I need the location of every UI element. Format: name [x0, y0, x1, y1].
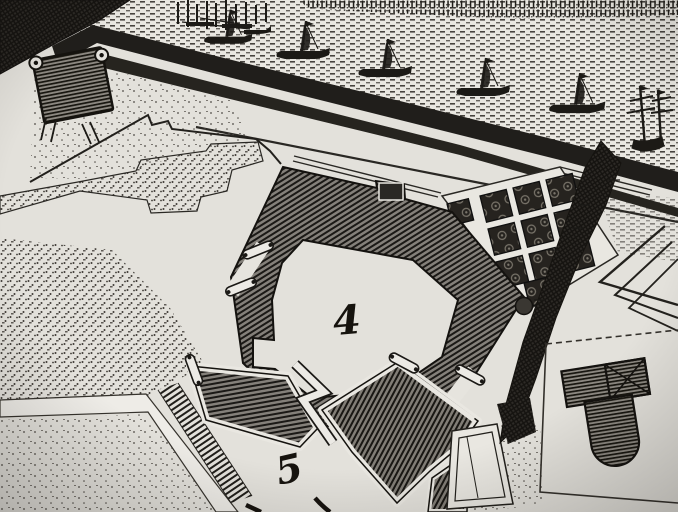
fortification-map: 4 5 [0, 0, 678, 512]
engraved-map-photo: 4 5 [0, 0, 678, 512]
photo-vignette [0, 0, 678, 512]
